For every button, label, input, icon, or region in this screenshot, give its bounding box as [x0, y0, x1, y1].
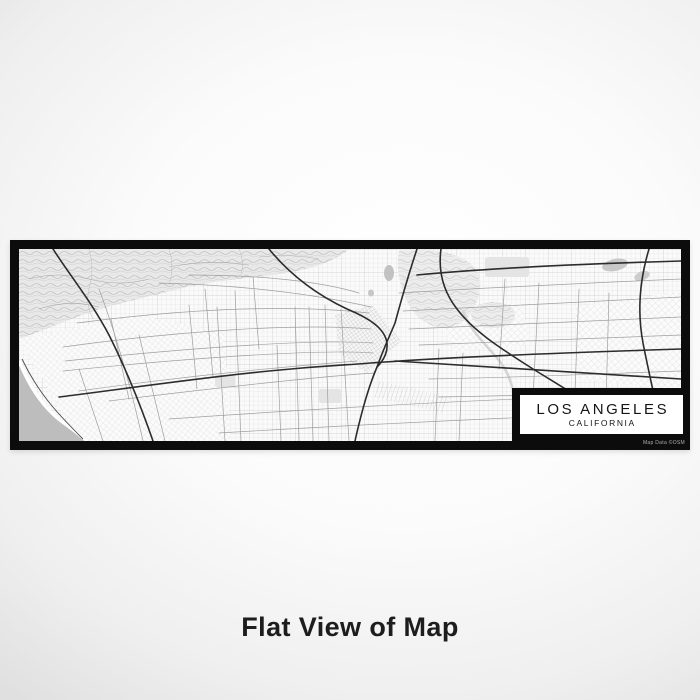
city-name: LOS ANGELES: [534, 401, 669, 418]
state-name: CALIFORNIA: [567, 418, 636, 429]
city-label-box: LOS ANGELES CALIFORNIA Map Data ©OSM: [512, 388, 690, 450]
map-frame: LOS ANGELES CALIFORNIA Map Data ©OSM: [10, 240, 690, 450]
page-title: Flat View of Map: [0, 612, 700, 643]
map-attribution: Map Data ©OSM: [643, 440, 685, 446]
city-label-card: LOS ANGELES CALIFORNIA: [520, 395, 683, 434]
product-image-page: LOS ANGELES CALIFORNIA Map Data ©OSM Fla…: [0, 0, 700, 700]
